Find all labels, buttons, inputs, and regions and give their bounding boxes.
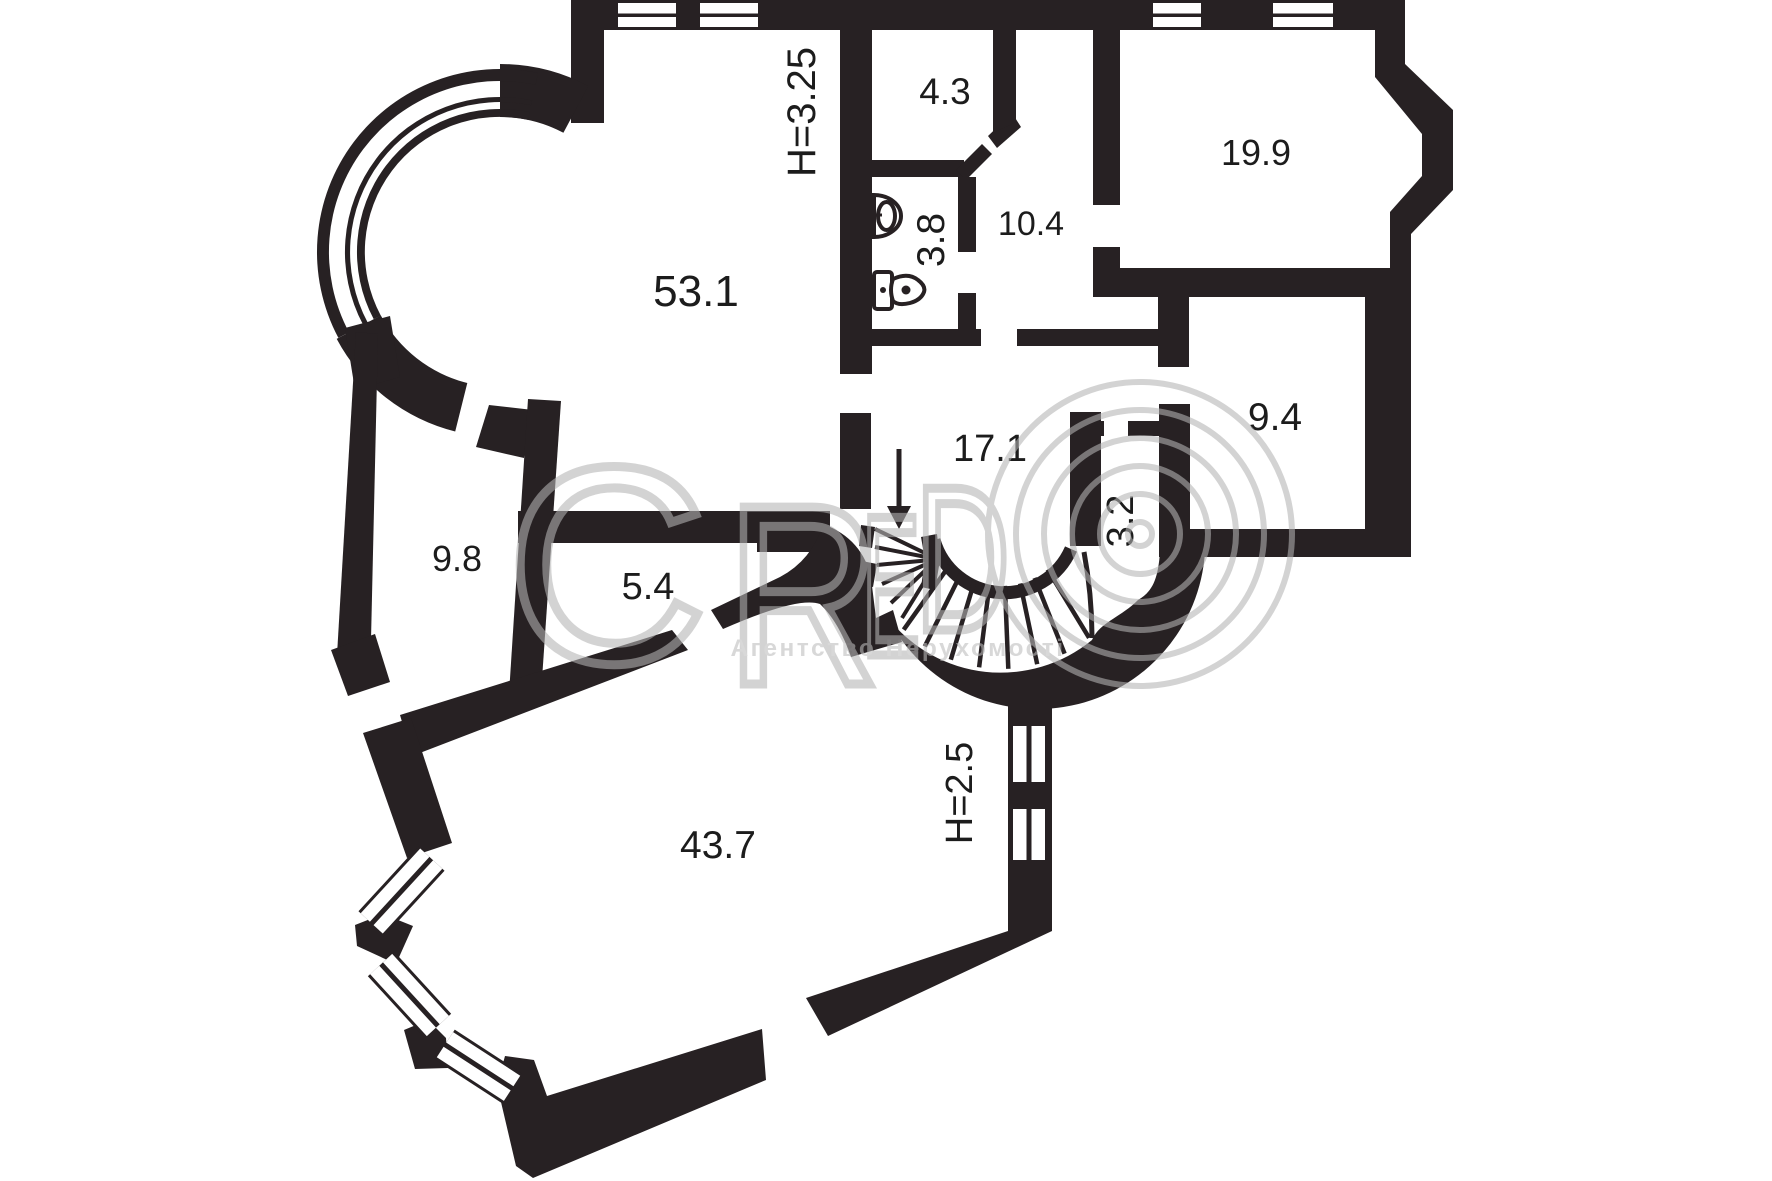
svg-text:9.8: 9.8 <box>432 538 482 579</box>
svg-text:3.8: 3.8 <box>910 213 953 267</box>
svg-text:43.7: 43.7 <box>680 824 756 867</box>
svg-text:10.4: 10.4 <box>998 205 1064 243</box>
svg-text:53.1: 53.1 <box>653 267 739 316</box>
svg-text:4.3: 4.3 <box>919 71 970 112</box>
svg-text:H=2.5: H=2.5 <box>939 742 981 844</box>
svg-text:R: R <box>726 452 880 739</box>
svg-text:H=3.25: H=3.25 <box>780 47 824 177</box>
svg-text:19.9: 19.9 <box>1221 132 1291 173</box>
svg-text:C: C <box>506 410 708 722</box>
svg-text:E: E <box>862 475 920 698</box>
svg-text:Агентство Нерухомості: Агентство Нерухомості <box>730 635 1065 662</box>
